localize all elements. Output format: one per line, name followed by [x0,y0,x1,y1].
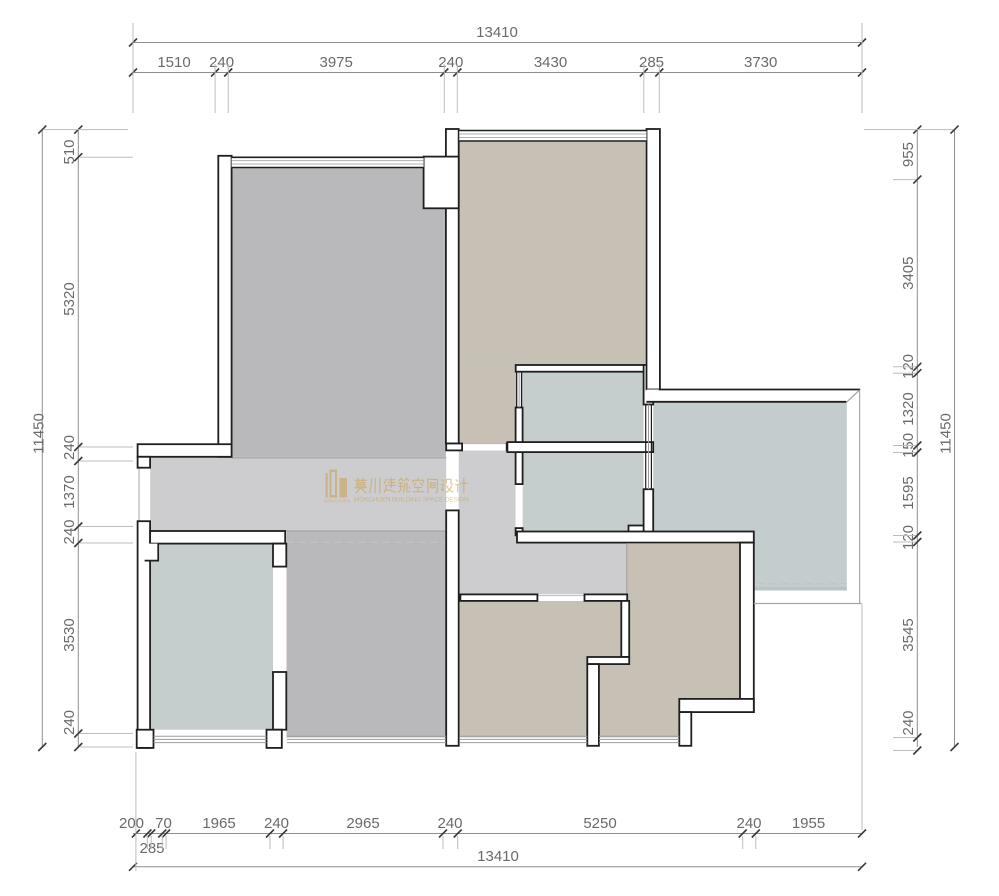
svg-text:240: 240 [61,710,78,735]
svg-text:240: 240 [900,710,917,735]
svg-text:11450: 11450 [938,413,955,454]
svg-text:3530: 3530 [61,618,78,651]
svg-text:3430: 3430 [534,54,567,71]
svg-text:1510: 1510 [157,54,190,71]
svg-text:3405: 3405 [900,257,917,290]
svg-text:120: 120 [900,525,917,550]
svg-text:240: 240 [61,519,78,544]
svg-text:MOKCHUEN BUILDING SPACE DESIGN: MOKCHUEN BUILDING SPACE DESIGN [354,497,469,504]
svg-text:240: 240 [736,815,761,832]
svg-text:240: 240 [264,815,289,832]
svg-text:3975: 3975 [320,54,353,71]
svg-text:1370: 1370 [61,475,78,508]
svg-text:510: 510 [61,139,78,164]
svg-text:1595: 1595 [900,476,917,509]
svg-text:13410: 13410 [476,24,518,41]
svg-text:3545: 3545 [900,618,917,651]
svg-text:70: 70 [155,815,172,832]
svg-text:200: 200 [119,815,144,832]
svg-text:2965: 2965 [346,815,379,832]
svg-text:1955: 1955 [792,815,825,832]
svg-text:955: 955 [900,142,917,167]
svg-text:13410: 13410 [477,848,519,865]
svg-text:240: 240 [438,54,463,71]
svg-text:3730: 3730 [744,54,777,71]
svg-text:240: 240 [61,435,78,460]
svg-text:1320: 1320 [900,392,917,425]
svg-text:240: 240 [437,815,462,832]
svg-text:5250: 5250 [583,815,616,832]
svg-text:5320: 5320 [61,282,78,315]
svg-text:240: 240 [209,54,234,71]
svg-text:11450: 11450 [31,413,48,454]
svg-text:285: 285 [139,840,164,857]
svg-text:1965: 1965 [202,815,235,832]
svg-text:MOKCHUEN: MOKCHUEN [324,499,350,504]
svg-text:285: 285 [639,54,664,71]
